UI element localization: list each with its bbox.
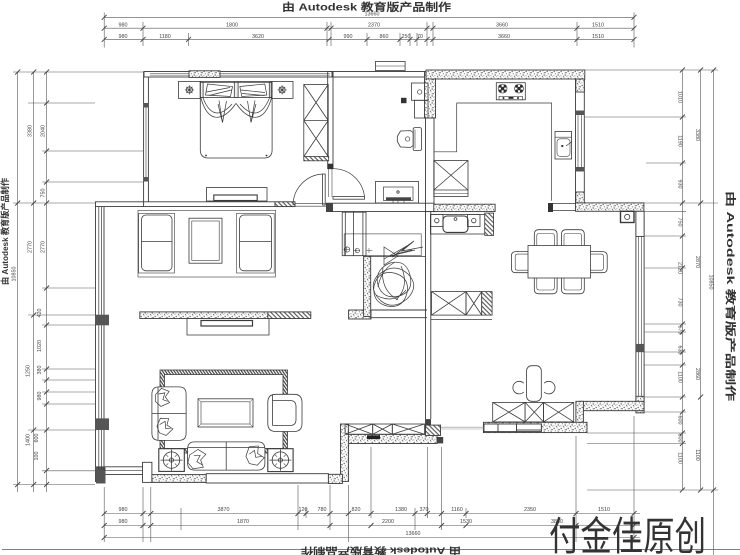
svg-text:420: 420 [37,309,43,318]
svg-text:1100: 1100 [676,371,682,383]
svg-text:3380: 3380 [694,129,700,141]
svg-text:3380: 3380 [28,125,34,137]
svg-text:2770: 2770 [41,241,47,253]
svg-text:3620: 3620 [252,34,264,40]
svg-text:1510: 1510 [592,23,604,29]
svg-text:3660: 3660 [496,23,508,29]
svg-text:980: 980 [119,507,128,513]
svg-text:2120: 2120 [676,262,682,274]
svg-text:630: 630 [676,346,682,355]
svg-text:由 Autodesk 教育版产品制作: 由 Autodesk 教育版产品制作 [724,191,737,402]
svg-text:1100: 1100 [676,452,682,464]
svg-text:2350: 2350 [524,507,536,513]
svg-text:1250: 1250 [26,365,32,377]
svg-text:1380: 1380 [395,507,407,513]
svg-text:990: 990 [344,34,353,40]
svg-text:1010: 1010 [676,91,682,103]
svg-text:670: 670 [676,326,682,335]
svg-text:380: 380 [37,366,43,375]
svg-text:2040: 2040 [41,125,47,137]
svg-text:1510: 1510 [598,507,610,513]
svg-text:1870: 1870 [237,519,249,525]
svg-text:600: 600 [676,416,682,425]
svg-text:800: 800 [676,434,682,443]
svg-text:600: 600 [34,434,40,443]
svg-text:1160: 1160 [451,507,463,513]
svg-text:1400: 1400 [26,434,32,446]
svg-text:1800: 1800 [226,23,238,29]
svg-text:750: 750 [41,189,47,198]
svg-text:860: 860 [380,34,389,40]
svg-text:70: 70 [417,34,423,40]
svg-text:3870: 3870 [218,507,230,513]
svg-text:780: 780 [318,507,327,513]
svg-text:930: 930 [676,180,682,189]
svg-text:由 Autodesk 教育版产品制作: 由 Autodesk 教育版产品制作 [282,1,452,14]
svg-text:1020: 1020 [37,340,43,352]
svg-text:2770: 2770 [28,241,34,253]
svg-text:1530: 1530 [460,519,472,525]
svg-text:750: 750 [676,218,682,227]
svg-text:1180: 1180 [159,34,171,40]
svg-text:13660: 13660 [406,531,421,537]
svg-text:2200: 2200 [382,519,394,525]
svg-text:980: 980 [37,392,43,401]
svg-text:980: 980 [119,23,128,29]
svg-text:10850: 10850 [12,267,18,282]
svg-text:10850: 10850 [707,275,713,290]
svg-text:250: 250 [402,34,411,40]
svg-text:980: 980 [119,34,128,40]
svg-text:2860: 2860 [694,368,700,380]
svg-text:980: 980 [119,519,128,525]
svg-text:2870: 2870 [694,256,700,268]
svg-text:1510: 1510 [592,34,604,40]
svg-text:3660: 3660 [498,34,510,40]
svg-text:由 Autodesk 教育版产品制作: 由 Autodesk 教育版产品制作 [0,178,10,285]
svg-text:730: 730 [676,298,682,307]
svg-text:120: 120 [299,507,308,513]
svg-text:1100: 1100 [694,449,700,461]
svg-text:100: 100 [34,452,40,461]
svg-text:付金佳原创: 付金佳原创 [549,514,706,555]
svg-text:1190: 1190 [676,135,682,147]
svg-text:820: 820 [352,507,361,513]
svg-text:2370: 2370 [368,23,380,29]
svg-text:由 Autodesk 教育版产品制作: 由 Autodesk 教育版产品制作 [300,545,461,555]
svg-text:370: 370 [420,507,429,513]
